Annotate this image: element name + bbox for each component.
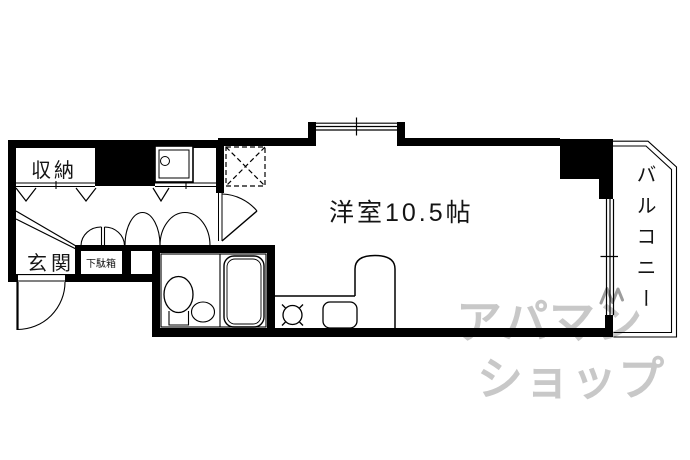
entrance-door-swing-arc (18, 282, 66, 330)
entrance-step-lines (16, 211, 76, 249)
kitchen-sink-icon (323, 302, 357, 328)
watermark-squiggle-icon (601, 289, 623, 304)
wall-window-jamb-left (308, 122, 316, 146)
refrigerator-space-marker (226, 147, 265, 186)
shoe-cabinet-label: 下駄箱 (86, 255, 116, 270)
floor-plan-canvas (0, 0, 690, 460)
room-door (219, 193, 258, 241)
entrance-door (18, 282, 66, 330)
wall-bottom-entrance-a (8, 274, 18, 282)
wall-block-closet (95, 146, 155, 186)
kitchen (275, 256, 395, 329)
folding-door-marks (16, 188, 169, 201)
wall-left (8, 140, 16, 282)
bathtub-inner (227, 259, 261, 324)
wall-right-bottom (605, 315, 613, 337)
wall-bottom-main (152, 328, 613, 337)
floor-plan-image: アパマン ショップ (0, 0, 690, 460)
wall-bath-top (152, 245, 275, 253)
wall-top-room-a (218, 138, 316, 146)
wash-basin-icon (192, 302, 215, 322)
toilet-icon (164, 277, 193, 313)
bathtub-icon (224, 256, 264, 327)
refrigerator-outline (355, 256, 395, 329)
unit-bath (161, 254, 266, 327)
entrance-label: 玄関 (27, 247, 75, 276)
storage-label: 収納 (31, 154, 77, 183)
walls (8, 122, 613, 337)
wall-bath-left (152, 245, 160, 337)
balcony-label: バルコニー (630, 164, 659, 319)
shoe-cabinet-doors (81, 227, 125, 246)
wall-top-room-b (397, 138, 560, 146)
wall-hall-divider (216, 146, 224, 193)
washing-machine-pan-icon (155, 146, 193, 182)
main-room-label: 洋室10.5帖 (329, 193, 474, 229)
wall-shoe-top (75, 245, 160, 251)
wall-pillar-ext (599, 139, 613, 199)
wall-bath-right (267, 245, 275, 337)
bathroom-door-arcs (125, 213, 210, 246)
room-door-swing-arc (222, 194, 257, 211)
room-door-leaf (222, 211, 257, 241)
window-top (316, 118, 397, 136)
stove-burner-icon (282, 305, 303, 326)
